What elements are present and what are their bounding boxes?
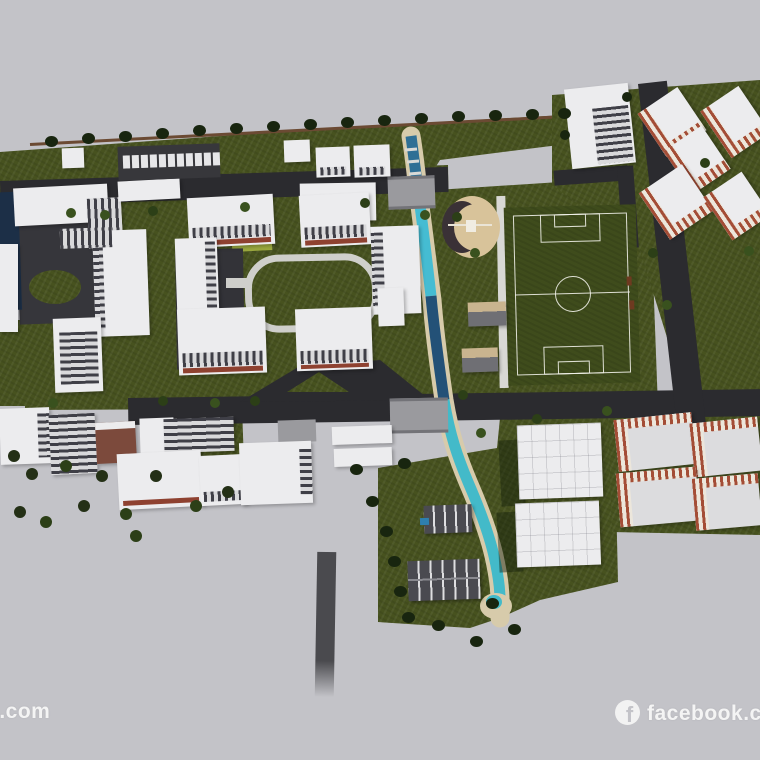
upper-bridge [387,175,435,210]
container-shed-2 [407,559,480,601]
br-block-1 [613,412,696,472]
amphitheater-floor [454,204,498,251]
solar-roof-array [59,331,99,384]
amphitheater [444,196,500,258]
rooftop-solar-array [60,227,113,249]
bl-solar-roof-building [163,417,234,453]
palm-row-top [45,136,58,147]
br-block-2 [689,417,760,478]
bl-gray-building [278,419,317,442]
quad-se-windows [300,349,368,364]
quad-building-mid-east [377,288,404,327]
shed-1 [468,301,507,326]
br-block-3 [616,467,700,528]
top-left-slab-building [118,178,181,201]
container-shed-1 [424,504,473,534]
bottom-palms [350,464,363,475]
canal-delta-water [486,595,502,609]
top-small-building-3 [315,146,350,177]
field-goalarea-bottom [558,361,590,375]
parked-cars-row [123,155,130,168]
top-small-building-4 [353,144,390,177]
team-bench-1 [627,276,632,285]
tr-tower [564,83,636,169]
top-small-building-1 [62,148,85,169]
parking-lot [117,143,220,181]
bottom-left-trees [8,450,20,462]
bl-slab-pair-a [332,425,393,445]
right-watermark: facebook.com [647,702,760,726]
bl-slab-pair-b [334,447,393,467]
left-watermark: n.com [0,700,50,724]
bl-building-7 [239,441,313,505]
render-canvas: n.com f facebook.com [0,0,760,760]
bl-building-2 [48,413,97,475]
top-building-3-face [320,167,346,176]
white-roof-building-2 [515,501,601,568]
top-building-4-face [359,167,385,176]
team-bench-2 [629,300,634,309]
top-small-building-2 [284,140,311,163]
quad-building-west-tower [175,237,220,314]
white-roof-building-1 [517,423,604,500]
facebook-icon-letter: f [626,705,633,725]
left-solar-building [53,317,104,393]
lower-bridge [390,397,449,433]
quad-sw-windows [182,351,262,368]
shed-2 [462,347,499,372]
bl-7-windows [299,449,313,495]
quad-building-se [295,307,373,372]
quad-building-ne [299,192,372,248]
quad-west-windows [205,241,217,307]
field-goalarea-top [554,214,586,228]
quad-building-sw [177,306,267,375]
facebook-icon: f [615,700,640,725]
bl-building-5 [117,450,204,510]
left-tower-windows [93,241,106,329]
campus-trees [66,208,76,218]
bl-6-windows [204,490,244,502]
bl-5-brick [123,497,199,506]
br-block-4 [692,473,760,531]
amphitheater-stage [466,220,476,232]
small-pool [420,518,429,525]
left-edge-building [0,244,18,332]
tr-tower-windows [592,105,634,164]
soccer-field [504,204,641,385]
